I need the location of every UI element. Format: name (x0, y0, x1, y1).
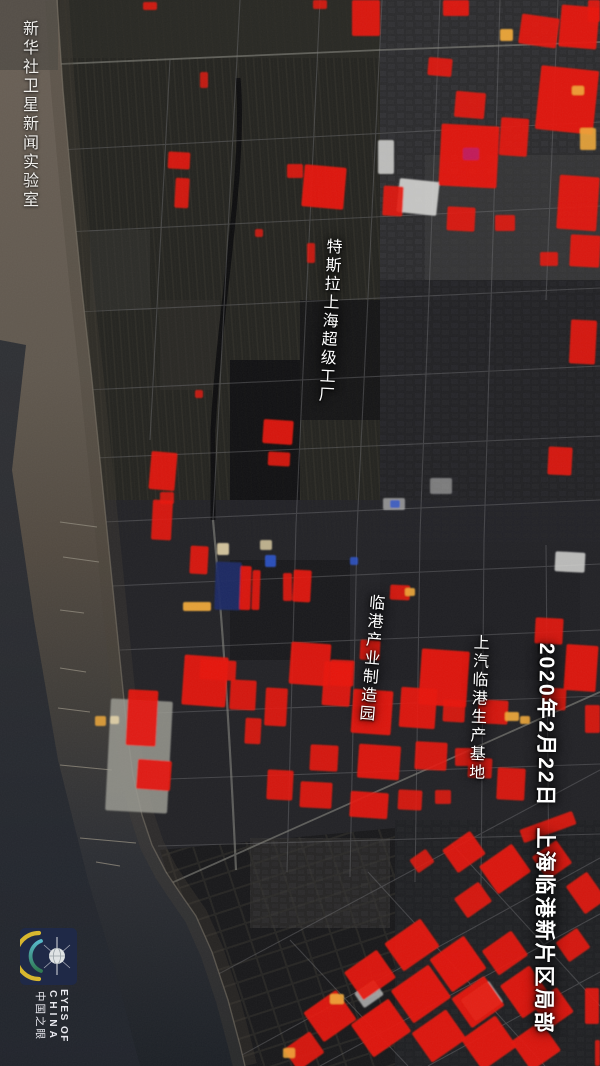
satellite-map (0, 0, 600, 1066)
logo-line-2: CHINA (47, 988, 58, 1044)
logo-line-3: 中国之眼 (34, 988, 46, 1044)
caption-date: 2020年2月22日 (534, 643, 558, 808)
satellite-news-graphic: 新华社卫星新闻实验室 特斯拉上海超级工厂 临港产业制造园 上汽临港生产基地 20… (0, 0, 600, 1066)
eyes-of-china-wordmark: EYES OF CHINA 中国之眼 (35, 988, 69, 1044)
agency-watermark: 新华社卫星新闻实验室 (16, 20, 40, 210)
grain-overlay (0, 0, 600, 1066)
eyes-of-china-emblem-icon (20, 928, 77, 985)
logo-line-1: EYES OF (58, 988, 69, 1044)
caption-location: 上海临港新片区局部 (532, 828, 557, 1035)
date-location-caption: 2020年2月22日上海临港新片区局部 (530, 643, 563, 1035)
